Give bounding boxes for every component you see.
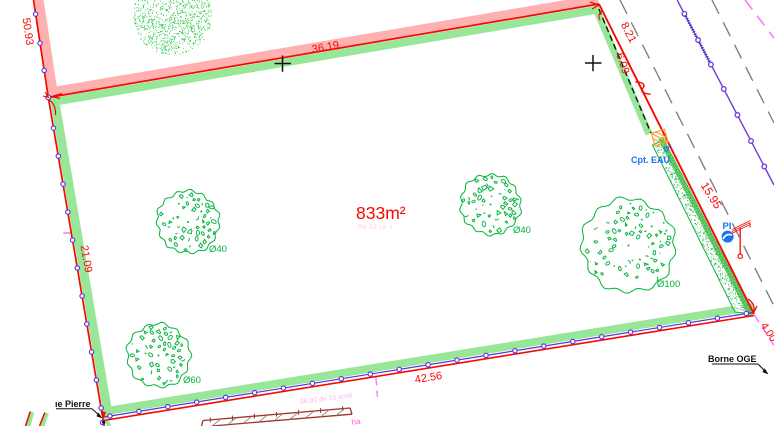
svg-text:ıe Pierre: ıe Pierre <box>55 399 91 409</box>
svg-text:Cpt. EAU: Cpt. EAU <box>631 155 670 165</box>
svg-text:Borne OGE: Borne OGE <box>708 354 757 364</box>
svg-text:Ø100: Ø100 <box>657 279 680 290</box>
svg-text:833m²: 833m² <box>356 203 406 223</box>
svg-text:PI: PI <box>723 221 732 232</box>
svg-text:8a 33 ca +: 8a 33 ca + <box>358 222 394 231</box>
svg-text:Ø60: Ø60 <box>183 375 201 386</box>
svg-text:Ø40: Ø40 <box>513 225 531 236</box>
svg-text:Ø40: Ø40 <box>209 244 227 255</box>
